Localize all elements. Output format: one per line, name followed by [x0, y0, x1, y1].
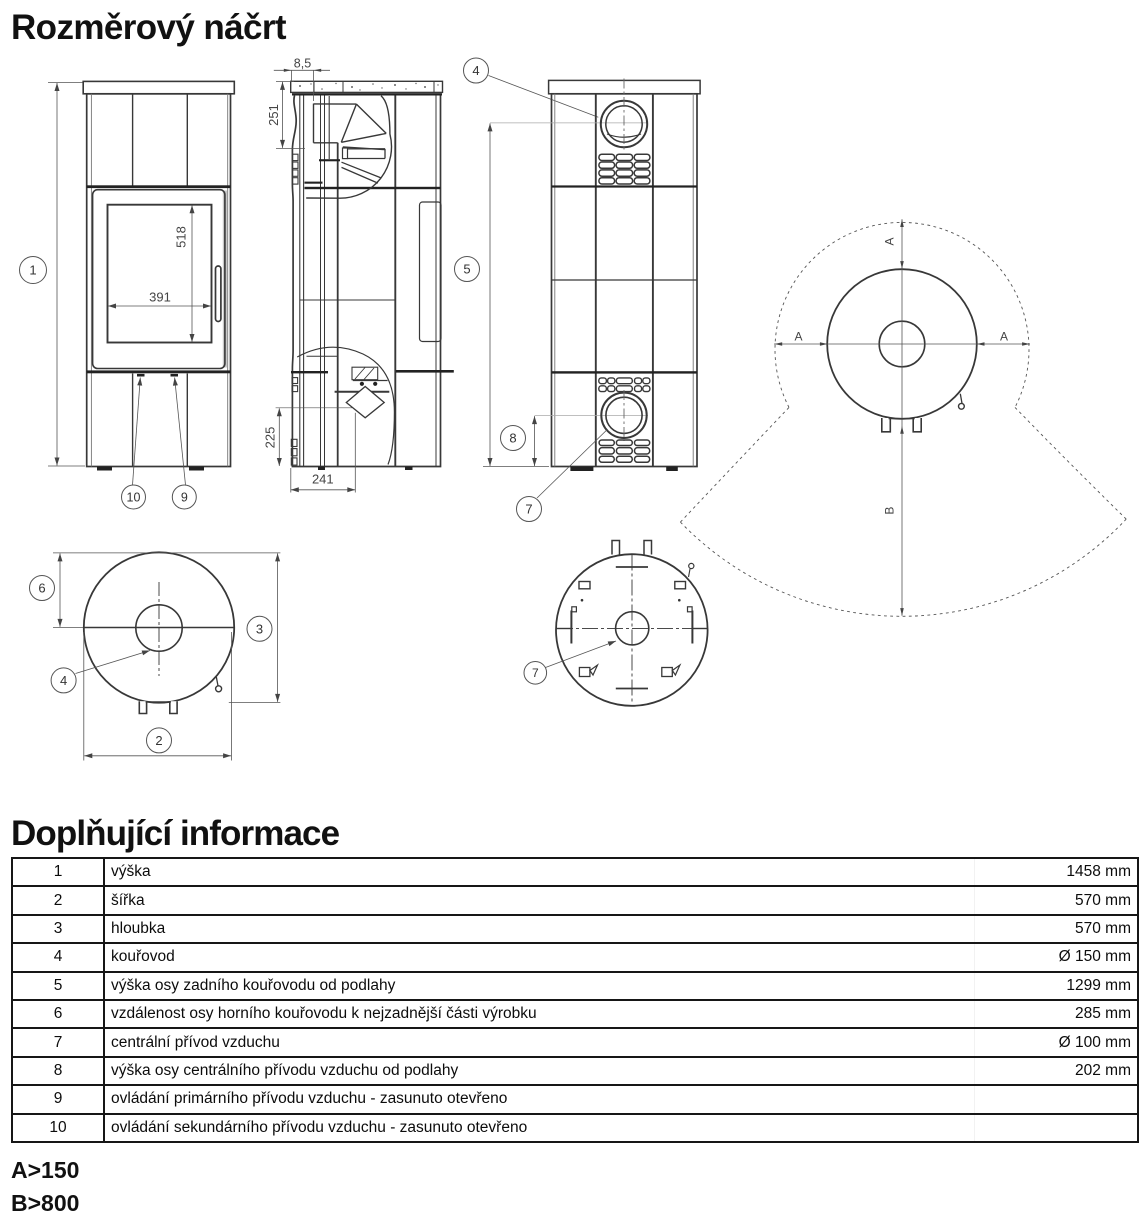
svg-text:3: 3: [256, 621, 263, 636]
svg-text:391: 391: [149, 290, 171, 305]
svg-text:251: 251: [266, 104, 281, 126]
svg-text:7: 7: [525, 502, 532, 517]
svg-text:A: A: [1000, 330, 1008, 344]
svg-text:8,5: 8,5: [294, 57, 311, 71]
svg-text:A: A: [883, 237, 897, 245]
svg-text:5: 5: [463, 262, 470, 277]
svg-text:7: 7: [532, 666, 539, 680]
svg-text:4: 4: [472, 63, 479, 78]
svg-text:8: 8: [509, 431, 516, 446]
svg-text:A: A: [794, 330, 802, 344]
svg-text:225: 225: [263, 427, 278, 449]
svg-text:4: 4: [60, 673, 67, 688]
svg-text:1: 1: [29, 263, 36, 278]
svg-text:2: 2: [155, 733, 162, 748]
svg-text:518: 518: [174, 226, 189, 248]
svg-text:6: 6: [38, 581, 45, 596]
svg-text:B: B: [883, 507, 897, 515]
svg-text:10: 10: [127, 491, 141, 505]
svg-text:9: 9: [181, 491, 188, 505]
svg-text:241: 241: [312, 472, 334, 487]
